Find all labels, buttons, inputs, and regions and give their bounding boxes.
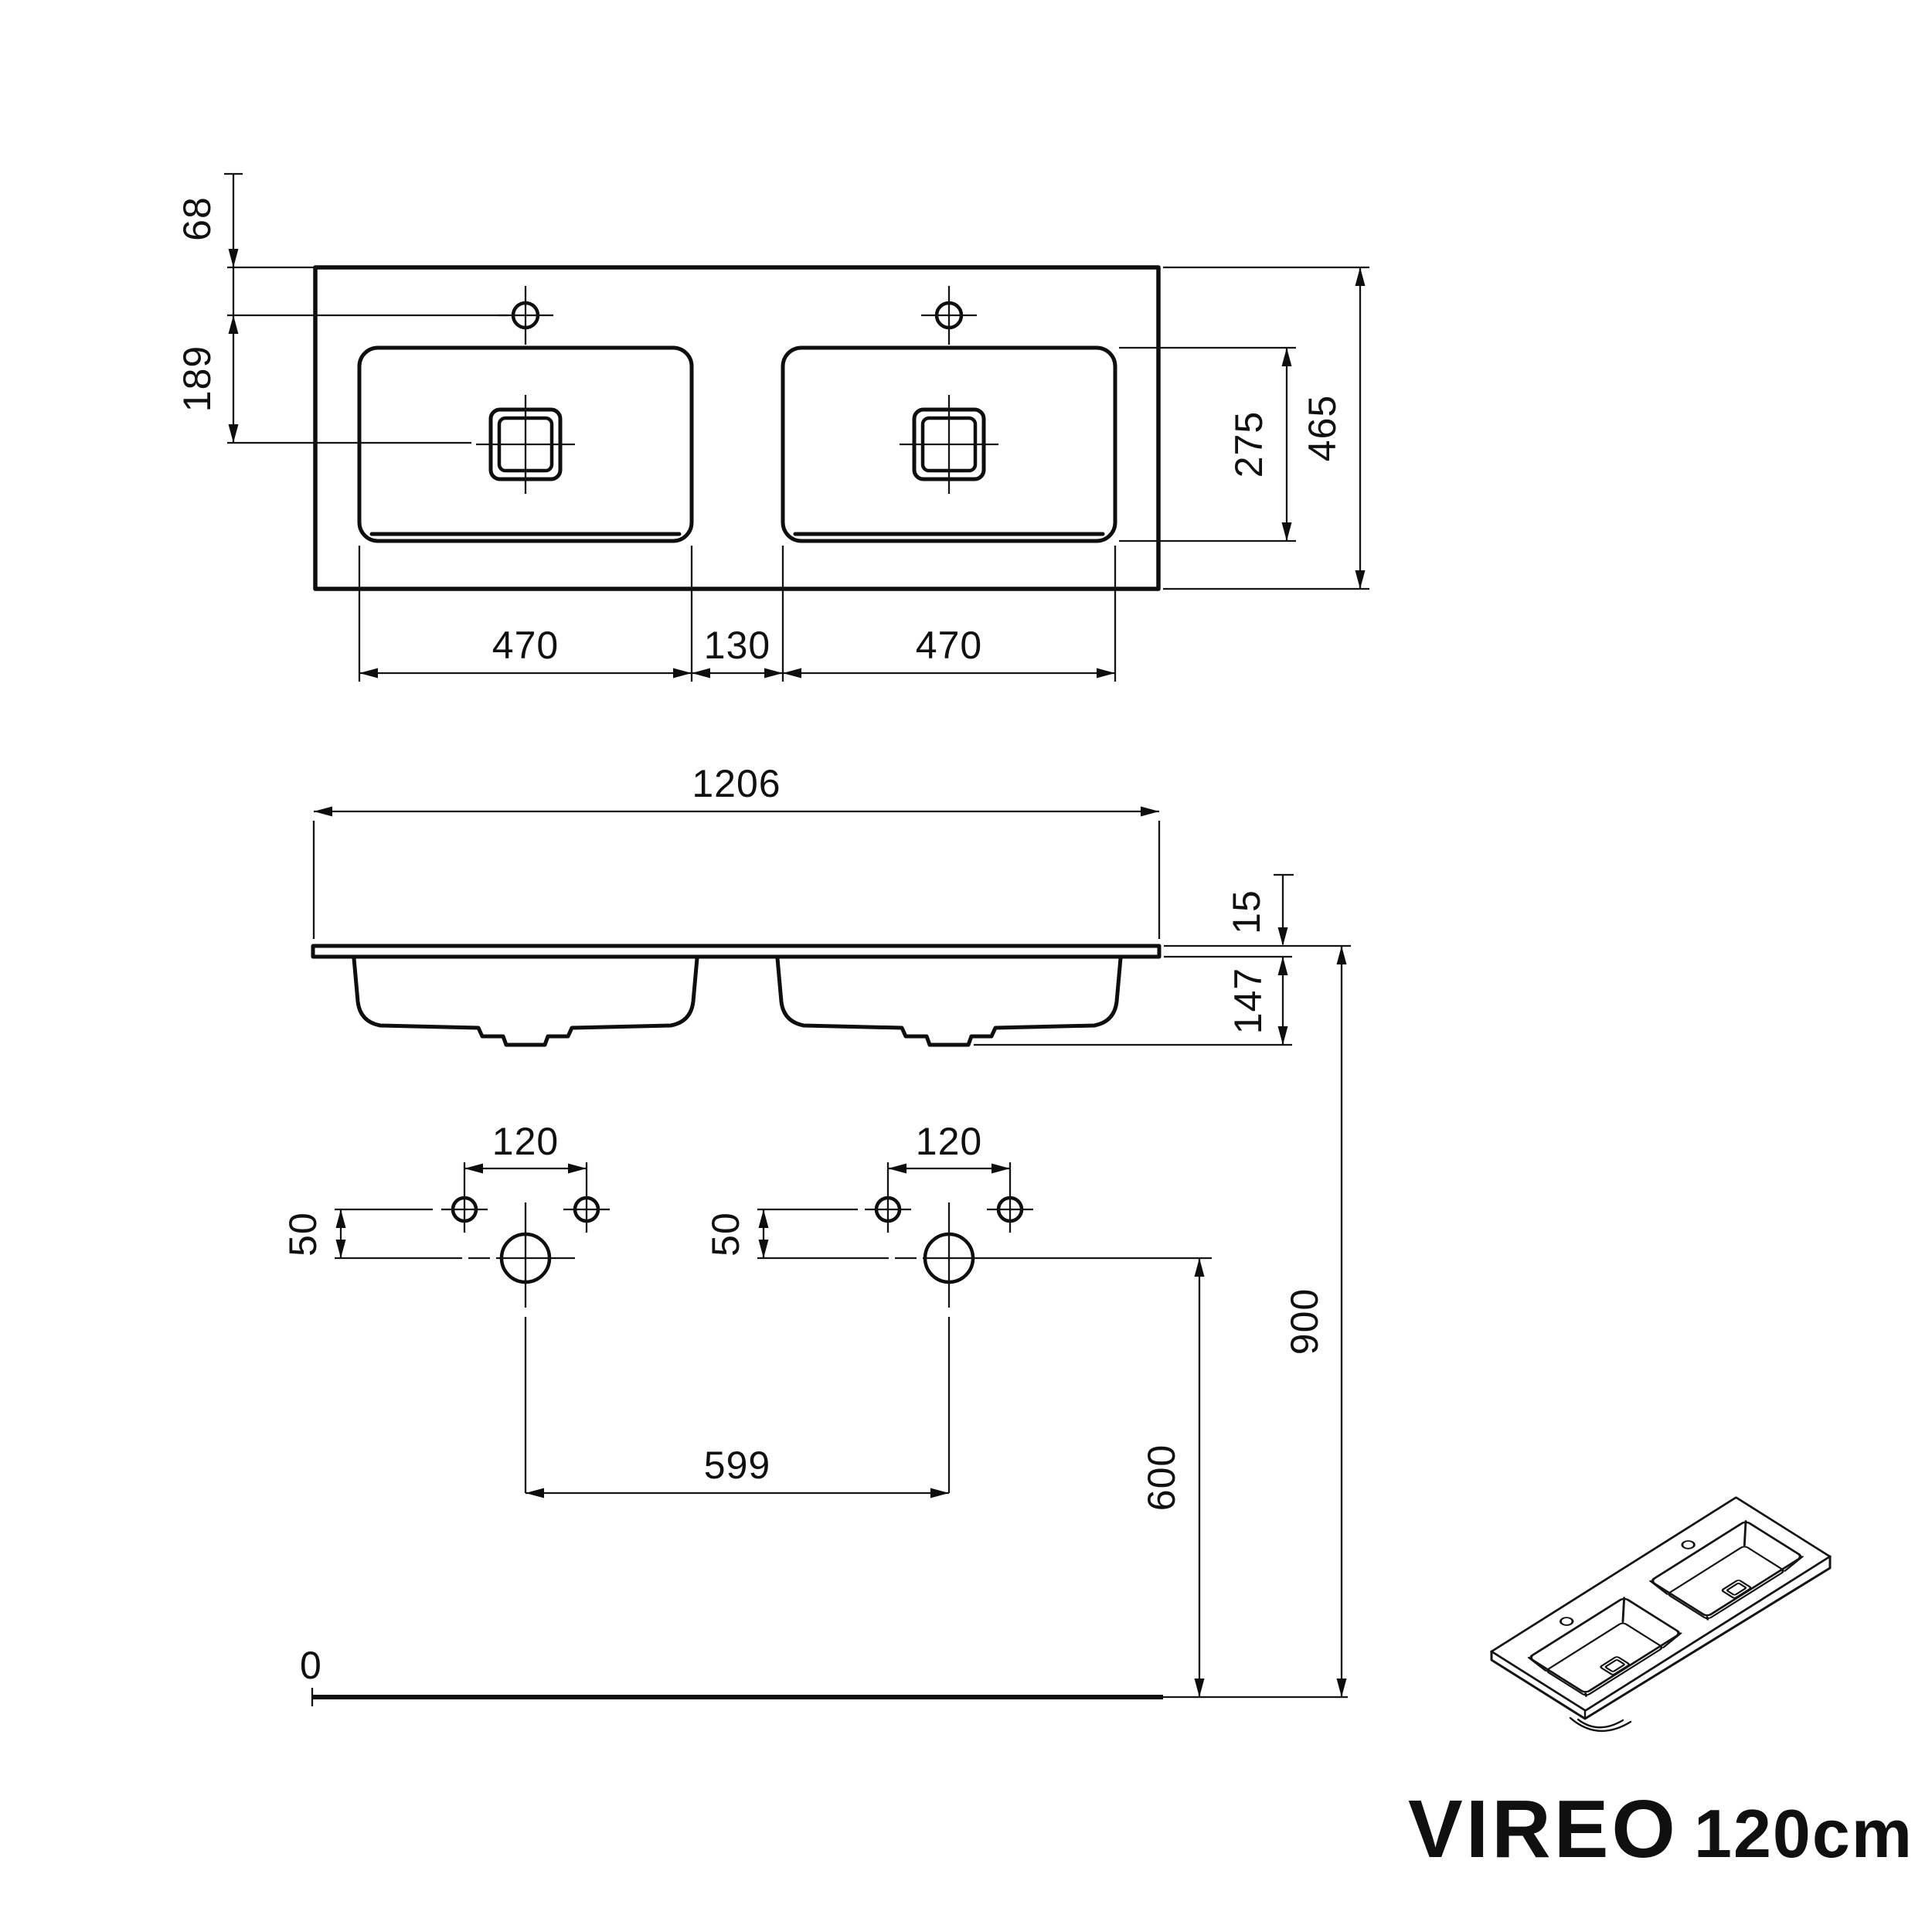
- right-taphole: [921, 286, 977, 345]
- technical-drawing: 68 189 470 130 470: [0, 0, 1932, 1932]
- left-basin-profile: [354, 958, 697, 1045]
- top-view: 68 189 470 130 470: [175, 174, 1369, 682]
- title-model: VIREO: [1408, 1784, 1679, 1875]
- dim-600: 600: [1140, 1258, 1205, 1697]
- left-drain: [476, 395, 575, 494]
- floor-line: 0: [300, 1644, 1348, 1706]
- dim-1206-label: 1206: [692, 762, 781, 805]
- title-block: VIREO 120cm: [1408, 1784, 1913, 1875]
- dim-900-label: 900: [1283, 1288, 1326, 1355]
- dim-120-left-label: 120: [492, 1120, 559, 1163]
- dim-50-right-label: 50: [704, 1212, 747, 1257]
- dim-120-right-label: 120: [916, 1120, 982, 1163]
- dim-900: 900: [1283, 946, 1347, 1697]
- countertop-slab: [313, 946, 1159, 957]
- dim-470-left-label: 470: [492, 624, 559, 667]
- thumb-left-basin-rim: [1529, 1597, 1681, 1693]
- dim-470-right-label: 470: [916, 624, 982, 667]
- floor-zero-label: 0: [300, 1644, 322, 1687]
- dim-465-label: 465: [1301, 395, 1344, 461]
- drill-template: 120 50 120: [281, 946, 1348, 1706]
- thumb-left-taphole: [1558, 1616, 1575, 1627]
- drawing-page: 68 189 470 130 470: [0, 0, 1932, 1932]
- dim-15-147: 15 147: [974, 875, 1351, 1045]
- thumb-slab-thickness: [1492, 1556, 1830, 1719]
- dim-68-label: 68: [175, 196, 219, 241]
- front-view: 1206 15 147: [313, 762, 1351, 1045]
- dim-189-label: 189: [175, 345, 219, 412]
- dim-600-label: 600: [1140, 1444, 1183, 1511]
- dim-599: 599: [526, 1444, 949, 1498]
- dim-130-label: 130: [704, 624, 770, 667]
- thumb-countertop: [1492, 1498, 1830, 1711]
- right-drain: [900, 395, 998, 494]
- dim-68-189: 68 189: [175, 174, 508, 443]
- dim-1206: 1206: [314, 762, 1159, 939]
- thumbnail-isometric: [1492, 1498, 1830, 1731]
- thumb-trap-inner: [1578, 1719, 1623, 1727]
- template-left-group: 120 50: [281, 1120, 610, 1493]
- thumb-basin-floors: [1546, 1546, 1785, 1696]
- title-size: 120cm: [1694, 1795, 1913, 1872]
- dim-470-130-470: 470 130 470: [359, 546, 1115, 682]
- dim-147-label: 147: [1226, 968, 1270, 1034]
- right-basin-profile: [777, 958, 1121, 1045]
- dim-275-label: 275: [1227, 411, 1270, 478]
- dim-50-left-label: 50: [281, 1212, 325, 1257]
- template-right-group: 120 50: [704, 1120, 1212, 1493]
- thumb-right-basin-rim: [1651, 1521, 1803, 1617]
- dim-15-label: 15: [1225, 889, 1268, 934]
- thumb-right-taphole: [1680, 1539, 1697, 1550]
- dim-599-label: 599: [704, 1444, 770, 1487]
